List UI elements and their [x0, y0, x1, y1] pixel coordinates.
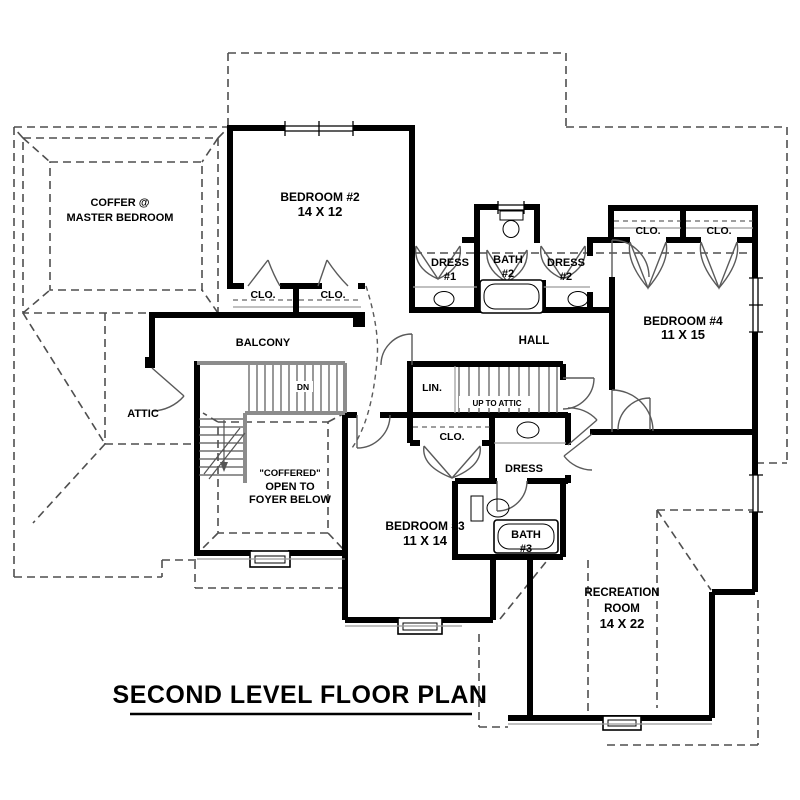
label-bath3-line2: #3 — [520, 543, 532, 555]
door-jamb — [353, 313, 365, 327]
label-bedroom2-dims: 14 X 12 — [298, 204, 343, 219]
label-balcony: BALCONY — [236, 337, 291, 349]
sink-dress1 — [434, 292, 454, 307]
label-foyer-line2: OPEN TO — [265, 481, 315, 493]
plan-title-group: SECOND LEVEL FLOOR PLAN — [113, 681, 488, 714]
plan-title: SECOND LEVEL FLOOR PLAN — [113, 681, 488, 709]
floor-plan-svg: DN UP TO ATTIC — [0, 0, 800, 800]
label-recreation-line1: RECREATION — [584, 587, 659, 599]
label-bath2-line2: #2 — [502, 268, 514, 280]
label-hall: HALL — [519, 335, 550, 347]
label-dress-hall: DRESS — [505, 463, 543, 475]
label-dress1-line2: #1 — [444, 271, 456, 283]
label-clo-bedroom2-right: CLO. — [320, 289, 345, 301]
label-recreation-line2: ROOM — [604, 603, 640, 615]
label-coffer-line1: COFFER @ — [90, 197, 149, 209]
label-bedroom3-dims: 11 X 14 — [403, 533, 448, 548]
stairs-down: DN — [197, 363, 345, 483]
label-bath2-line1: BATH — [493, 254, 523, 266]
floor-plan-page: DN UP TO ATTIC — [0, 0, 800, 800]
label-linen: LIN. — [422, 382, 442, 394]
label-bedroom4-name: BEDROOM #4 — [643, 314, 723, 328]
label-foyer-line3: FOYER BELOW — [249, 494, 332, 506]
door-jamb — [145, 357, 155, 368]
label-dress2-line2: #2 — [560, 271, 572, 283]
label-stairs-up: UP TO ATTIC — [472, 399, 521, 408]
sink-dress-hall — [517, 422, 539, 438]
label-coffer-line2: MASTER BEDROOM — [67, 212, 174, 224]
label-dress2-line1: DRESS — [547, 257, 585, 269]
roof-outline-dashed — [14, 53, 787, 745]
tub-bath2 — [480, 280, 543, 313]
label-recreation-dims: 14 X 22 — [600, 616, 645, 631]
window-recreation-sill — [603, 716, 641, 730]
label-bedroom2-name: BEDROOM #2 — [280, 190, 360, 204]
label-clo-bedroom4-left: CLO. — [635, 225, 660, 237]
stairs-up-to-attic: UP TO ATTIC — [455, 366, 557, 413]
label-clo-bedroom2-left: CLO. — [250, 289, 275, 301]
label-foyer-line1: "COFFERED" — [259, 468, 320, 479]
label-bedroom4-dims: 11 X 15 — [661, 327, 705, 342]
sink-dress2 — [568, 292, 588, 307]
toilet-bath3 — [471, 496, 509, 521]
label-attic: ATTIC — [127, 408, 159, 420]
toilet-bath2 — [500, 211, 523, 238]
label-dress1-line1: DRESS — [431, 257, 469, 269]
label-bath3-line1: BATH — [511, 529, 541, 541]
label-bedroom3-name: BEDROOM #3 — [385, 519, 465, 533]
label-stairs-down: DN — [297, 382, 309, 392]
label-clo-hall: CLO. — [439, 431, 464, 443]
labels: COFFER @ MASTER BEDROOM BEDROOM #2 14 X … — [67, 190, 732, 631]
label-clo-bedroom4-right: CLO. — [706, 225, 731, 237]
